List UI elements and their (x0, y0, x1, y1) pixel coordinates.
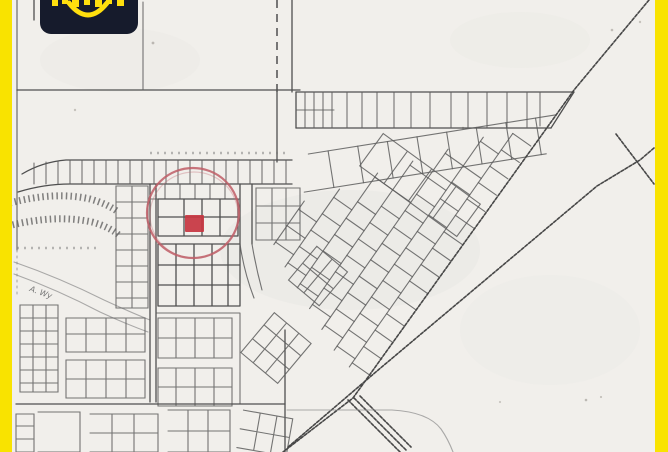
logo-badge (40, 0, 138, 34)
location-marker-square (185, 215, 204, 232)
yellow-frame-right (655, 0, 668, 452)
yellow-frame-left (0, 0, 12, 452)
listing-map-image: A. Wy (0, 0, 668, 452)
plat-map: A. Wy (0, 0, 668, 452)
